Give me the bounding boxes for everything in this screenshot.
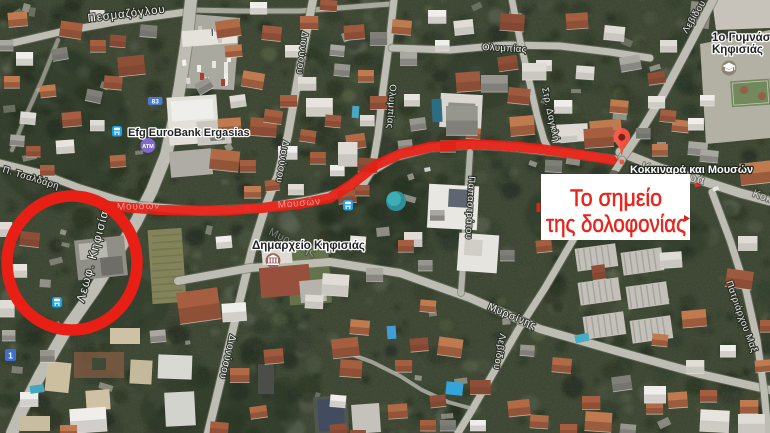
svg-text:Δημαρχείο Κηφισιάς: Δημαρχείο Κηφισιάς (252, 240, 365, 252)
svg-text:ATM: ATM (142, 144, 154, 150)
svg-text:Κηφισιάς: Κηφισιάς (712, 44, 763, 56)
svg-text:1ο Γυμνάσιο: 1ο Γυμνάσιο (712, 32, 770, 44)
svg-text:Efg EuroBank Ergasias: Efg EuroBank Ergasias (128, 127, 250, 139)
svg-text:1: 1 (8, 351, 13, 361)
svg-text:83: 83 (152, 99, 160, 106)
svg-text:Μουσών: Μουσών (117, 199, 161, 212)
svg-text:Ολυμπίας: Ολυμπίας (482, 42, 527, 55)
svg-text:Το σημείο: Το σημείο (570, 185, 662, 212)
svg-text:της δολοφονίας: της δολοφονίας (546, 211, 686, 238)
